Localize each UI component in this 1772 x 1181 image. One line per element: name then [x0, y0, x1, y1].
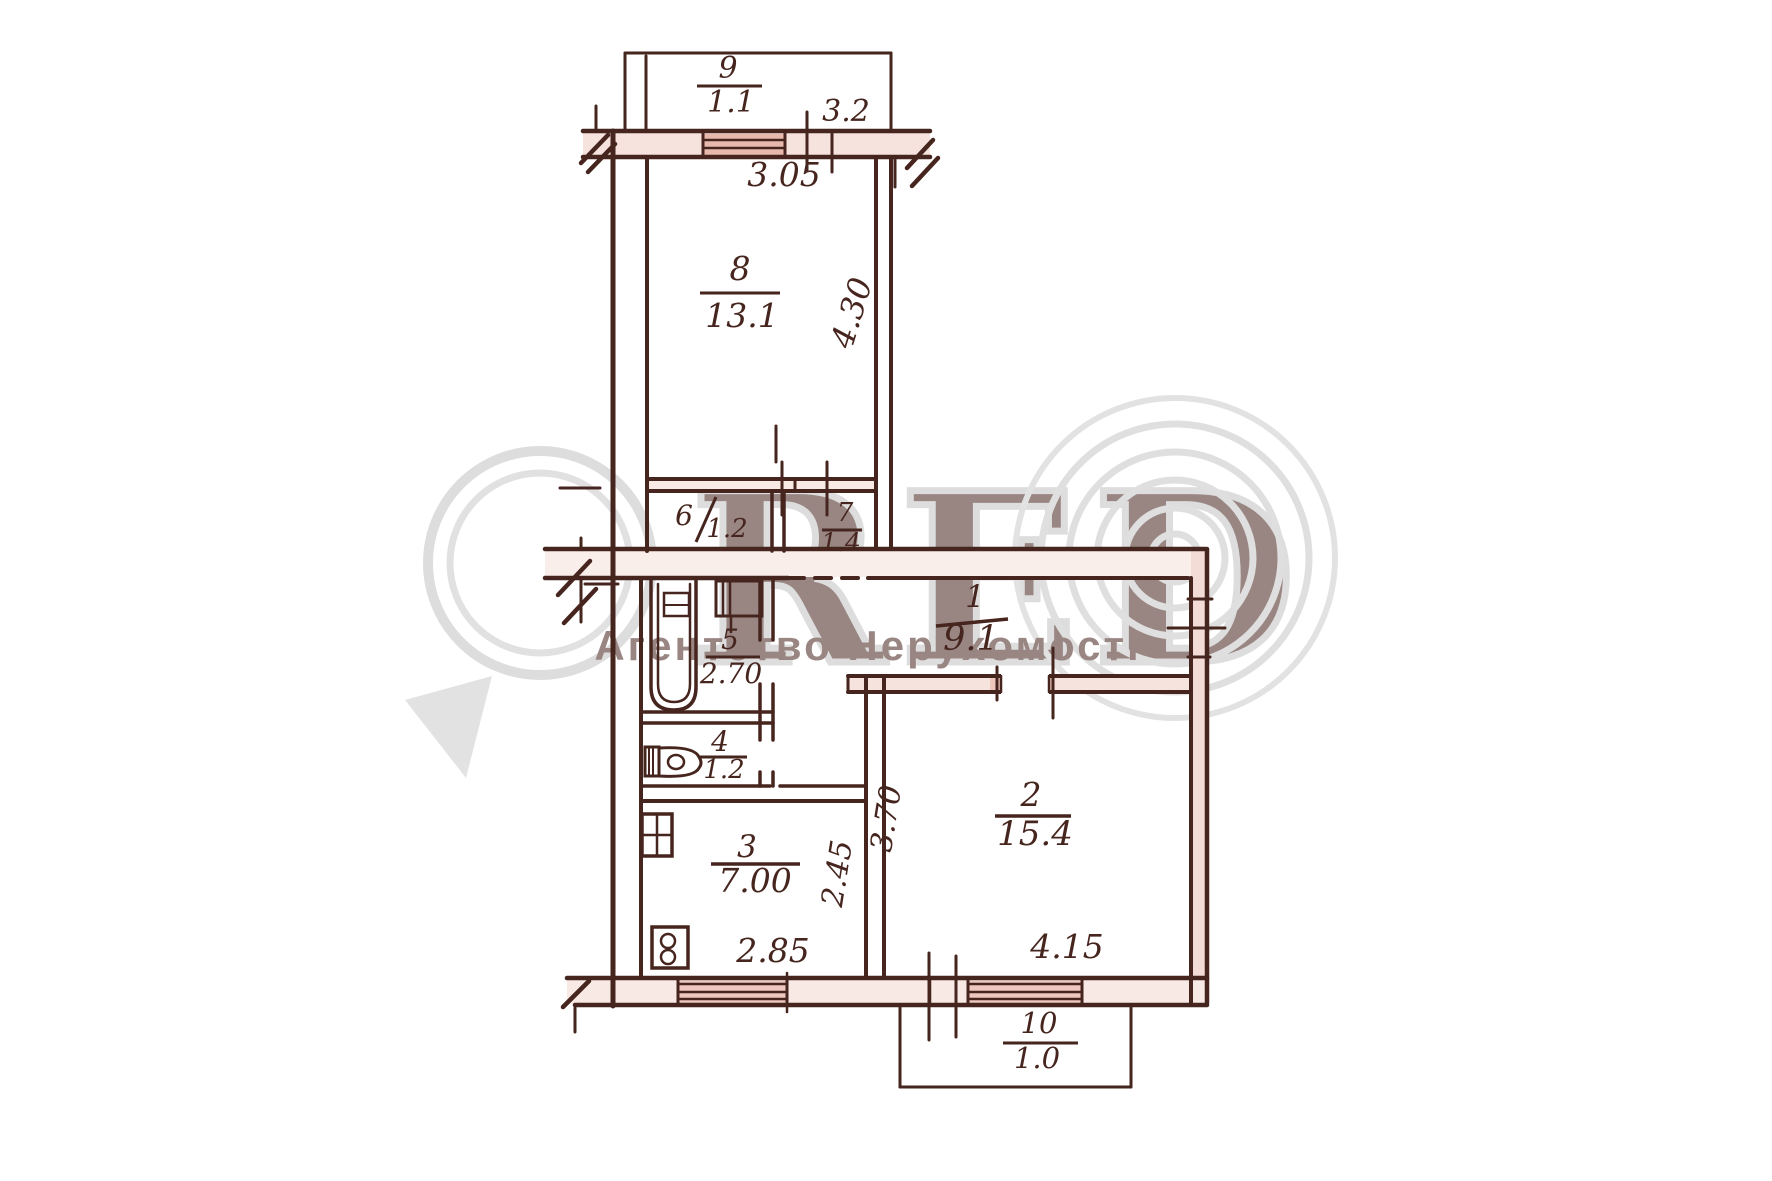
room-4-area-label: 1.2	[703, 755, 744, 785]
room-9-area-label: 1.1	[707, 85, 755, 120]
room-7-area-label: 1.4	[821, 528, 861, 557]
room-8-number-label: 8	[730, 249, 751, 288]
room-8-area-label: 13.1	[705, 296, 778, 335]
room-9-number-label: 9	[718, 51, 737, 86]
dim-kitchen-width: 2.85	[735, 931, 809, 970]
room-4-number-label: 4	[710, 725, 729, 758]
window-room2	[968, 980, 1082, 1003]
room-3-area-label: 7.00	[718, 861, 791, 900]
room-2-area-label: 15.4	[997, 814, 1073, 854]
room-7-number-label: 7	[837, 498, 854, 528]
dim-balcony-top-width: 3.2	[822, 94, 870, 129]
dim-room2-width: 4.15	[1029, 927, 1103, 966]
room-3-number-label: 3	[737, 829, 757, 865]
room-2-number-label: 2	[1020, 775, 1042, 814]
room-10-number-label: 10	[1021, 1006, 1058, 1040]
room-10-area-label: 1.0	[1014, 1041, 1060, 1075]
room-6-number-label: 6	[675, 499, 693, 532]
room-5-number-label: 5	[721, 623, 739, 656]
room-6-area-label: 1.2	[706, 514, 747, 544]
dim-room8-width: 3.05	[747, 155, 820, 194]
room-1-number-label: 1	[965, 579, 985, 615]
floor-plan-drawing: RED Агентство Нерухомості	[0, 0, 1772, 1181]
room-5-area-label: 2.70	[699, 657, 762, 690]
room-1-area-label: 9.1	[943, 619, 999, 659]
scanned-floor-plan-page: RED Агентство Нерухомості	[0, 0, 1772, 1181]
watermark-agency-text: Агентство Нерухомості	[594, 622, 1141, 669]
